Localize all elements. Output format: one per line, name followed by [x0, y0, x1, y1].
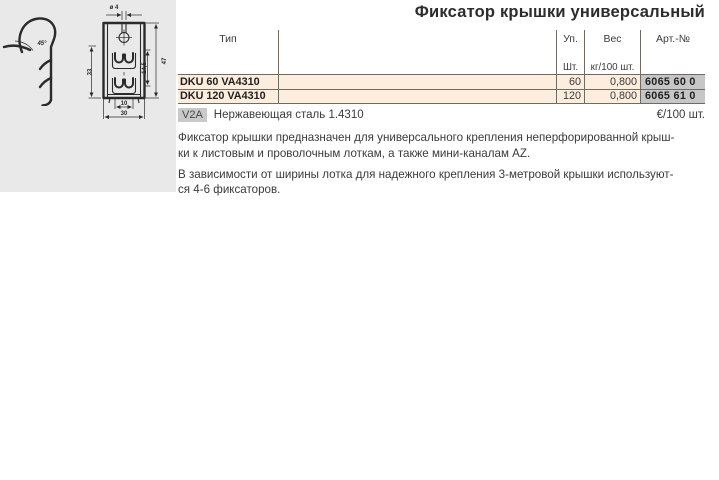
dim-label-total-height: 47 — [162, 57, 168, 64]
dim-label-inner-width: 10 — [121, 101, 128, 107]
front-view-drawing: ø 4 33 14,5 47 10 — [86, 0, 176, 128]
column-header-type-label: Тип — [219, 33, 237, 45]
description-line: ся 4-6 фиксаторов. — [178, 182, 708, 198]
material-badge: V2A — [178, 108, 207, 122]
dim-label-total-width: 30 — [121, 111, 128, 117]
dim-label-inner-height: 14,5 — [142, 62, 148, 74]
column-header-weight-label: Вес — [603, 33, 621, 45]
side-profile-drawing: 45° — [2, 14, 84, 106]
description-paragraph: Фиксатор крышки предназначен для универс… — [178, 130, 708, 162]
table-header: Тип Уп. Шт. Вес кг/100 шт. Арт.-№ — [178, 30, 705, 75]
cell-art: 6065 61 0 — [641, 90, 705, 104]
table-row: DKU 120 VA4310 120 0,800 6065 61 0 — [178, 90, 705, 105]
column-header-spacer — [279, 30, 557, 74]
column-header-weight: Вес кг/100 шт. — [585, 30, 641, 74]
column-header-art: Арт.-№ — [641, 30, 705, 74]
dim-label-height-side: 33 — [88, 68, 94, 75]
cell-type: DKU 120 VA4310 — [178, 90, 279, 104]
technical-drawing-box: 45° — [0, 0, 176, 192]
material-name: Нержавеющая сталь 1.4310 — [214, 109, 364, 121]
product-table: Тип Уп. Шт. Вес кг/100 шт. Арт.-№ DKU 60… — [178, 30, 705, 104]
price-unit: €/100 шт. — [657, 109, 705, 121]
cell-pack: 60 — [557, 75, 585, 89]
column-header-type: Тип — [178, 30, 279, 74]
description-line: Фиксатор крышки предназначен для универс… — [178, 130, 708, 146]
subheader-pack-unit: Шт. — [563, 62, 578, 73]
cell-spacer — [279, 75, 557, 89]
description-paragraph: В зависимости от ширины лотка для надежн… — [178, 167, 708, 199]
dim-label-angle: 45° — [36, 41, 47, 47]
cell-weight: 0,800 — [585, 90, 641, 104]
table-row: DKU 60 VA4310 60 0,800 6065 60 0 — [178, 75, 705, 90]
product-description: Фиксатор крышки предназначен для универс… — [178, 130, 708, 203]
catalog-page: 45° — [0, 0, 719, 480]
description-line: В зависимости от ширины лотка для надежн… — [178, 167, 708, 183]
column-header-art-label: Арт.-№ — [656, 33, 690, 45]
dim-label-diameter: ø 4 — [110, 5, 119, 11]
cell-pack: 120 — [557, 90, 585, 104]
description-line: ки к листовым и проволочным лоткам, а та… — [178, 146, 708, 162]
cell-art: 6065 60 0 — [641, 75, 705, 89]
column-header-pack-label: Уп. — [563, 33, 578, 45]
page-title: Фиксатор крышки универсальный — [178, 3, 705, 22]
cell-weight: 0,800 — [585, 75, 641, 89]
subheader-weight-unit: кг/100 шт. — [591, 62, 635, 73]
cell-type: DKU 60 VA4310 — [178, 75, 279, 89]
material-row: V2A Нержавеющая сталь 1.4310 €/100 шт. — [178, 108, 705, 122]
cell-spacer — [279, 90, 557, 104]
column-header-pack: Уп. Шт. — [557, 30, 585, 74]
